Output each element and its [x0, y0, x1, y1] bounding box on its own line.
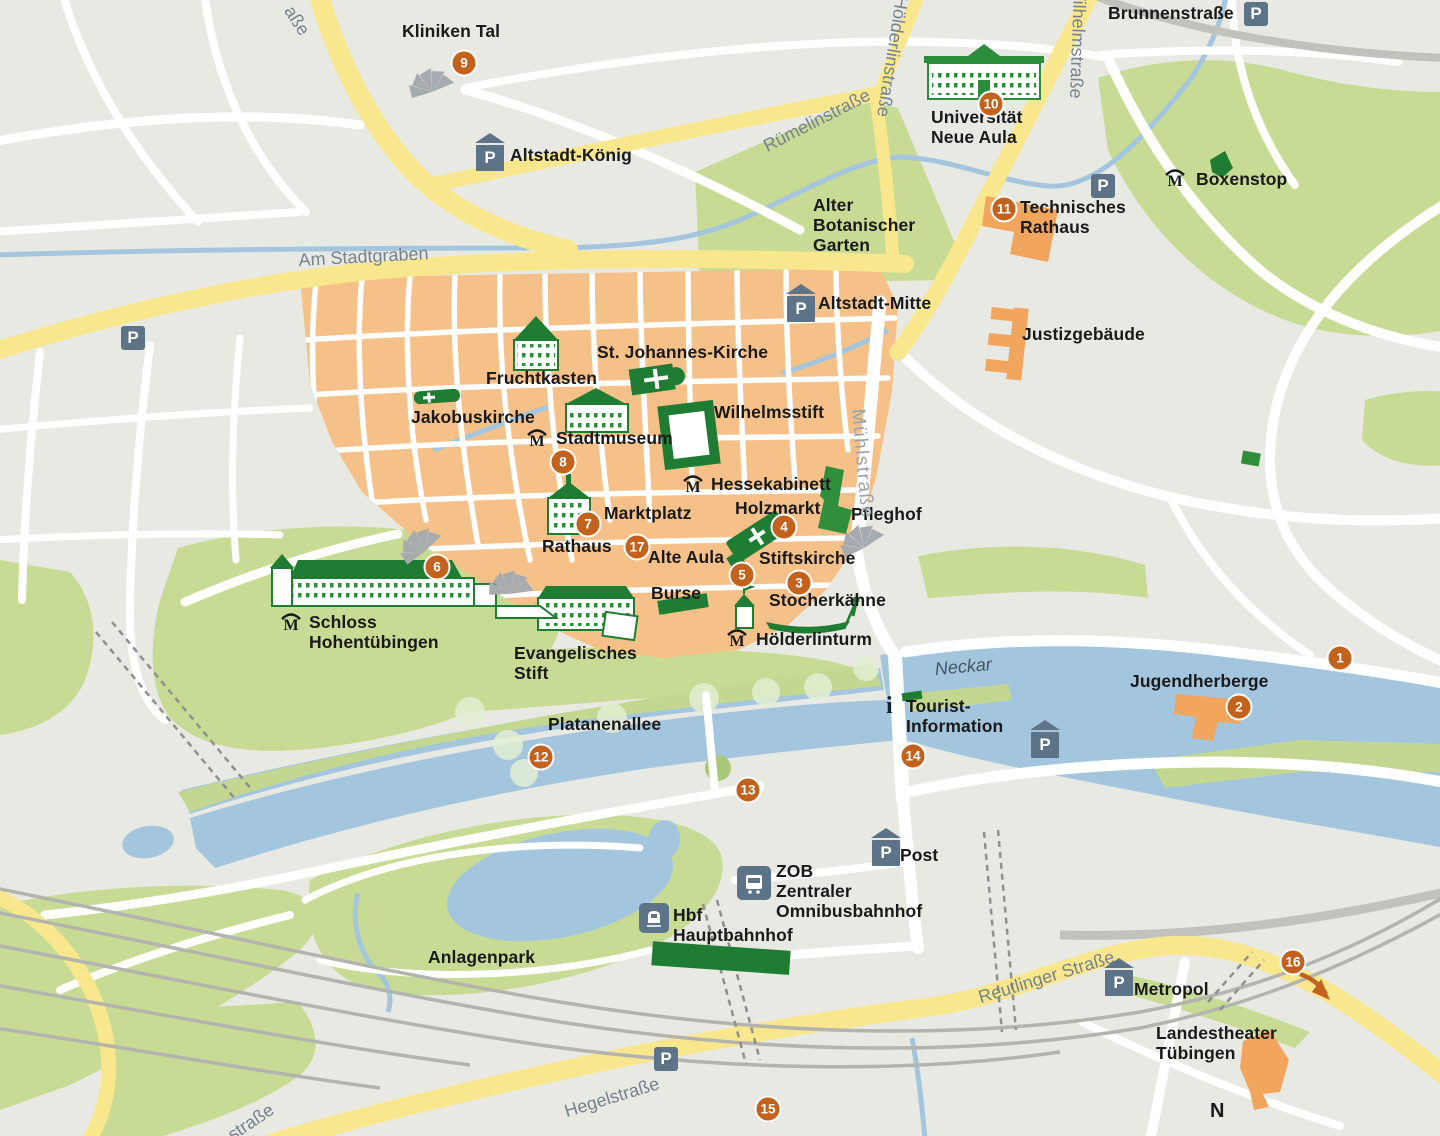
label-line: Tourist- [906, 697, 1003, 717]
label-burse: Burse [651, 584, 701, 604]
parking-garage-icon: P [786, 284, 816, 322]
label-hbf: HbfHauptbahnhof [673, 906, 793, 946]
label-tourist-information: Tourist-Information [906, 697, 1003, 737]
marker-8: 8 [550, 449, 577, 476]
label-line: Rümelinstraße [760, 85, 874, 157]
museum-icon: M [1164, 168, 1186, 189]
label-line: straße [224, 1099, 278, 1136]
label-anlagenpark: Anlagenpark [428, 948, 535, 968]
label-boxenstop: Boxenstop [1196, 170, 1287, 190]
label-line: Rathaus [542, 537, 612, 557]
parking-letter: P [121, 326, 145, 350]
train-glyph [643, 907, 665, 929]
museum-letter: M [685, 481, 700, 495]
label-ruemelinstrasse: Rümelinstraße [760, 85, 874, 157]
parking-letter: P [654, 1047, 678, 1071]
label-jugendherberge: Jugendherberge [1130, 672, 1269, 692]
parking-letter: P [1105, 970, 1133, 996]
label-line: Hauptbahnhof [673, 926, 793, 946]
parking-letter: P [1244, 2, 1268, 26]
parking-letter: P [872, 840, 900, 866]
label-line: Boxenstop [1196, 170, 1287, 190]
label-line: Rathaus [1020, 218, 1126, 238]
label-alte-aula: Alte Aula [648, 548, 724, 568]
label-line: Landestheater [1156, 1024, 1277, 1044]
marker-11: 11 [991, 196, 1018, 223]
label-line: Altstadt-Mitte [818, 294, 931, 314]
label-line: Zentraler [776, 882, 922, 902]
marker-1: 1 [1327, 645, 1354, 672]
label-line: Stocherkähne [769, 591, 886, 611]
parking-garage-icon: P [871, 828, 901, 866]
label-reutlinger-strasse: Reutlinger Straße [976, 947, 1117, 1008]
label-line: N [1210, 1100, 1225, 1123]
label-strasse-top-left: aße [279, 2, 314, 39]
marker-15: 15 [755, 1096, 782, 1123]
label-hoelderlinturm: Hölderlinturm [756, 630, 872, 650]
tuebingen-city-map: Tübingen Altstadt tourist map [0, 0, 1440, 1136]
label-line: aße [279, 2, 314, 39]
label-line: Neue Aula [931, 128, 1023, 148]
label-am-stadtgraben: Am Stadtgraben [298, 243, 429, 271]
label-line: Jugendherberge [1130, 672, 1269, 692]
parking-garage-icon: P [1030, 720, 1060, 758]
label-hessekabinett: Hessekabinett [711, 475, 831, 495]
label-line: Evangelisches [514, 644, 637, 664]
label-line: Universität [931, 108, 1023, 128]
label-strasse-bottom-left: straße [224, 1099, 278, 1136]
label-line: Omnibusbahnhof [776, 902, 922, 922]
label-line: Hölderlinstraße [872, 0, 912, 119]
museum-icon: M [280, 612, 302, 633]
marker-6: 6 [424, 554, 451, 581]
label-brunnenstrasse: Brunnenstraße [1108, 4, 1234, 24]
label-jakobuskirche: Jakobuskirche [411, 408, 535, 428]
label-line: Neckar [934, 654, 993, 680]
label-kliniken-tal: Kliniken Tal [402, 22, 500, 42]
museum-icon: M [682, 474, 704, 495]
label-hoelderlinstrasse: Hölderlinstraße [872, 0, 912, 119]
label-line: Stift [514, 664, 637, 684]
label-line: Garten [813, 236, 915, 256]
label-zob: ZOBZentralerOmnibusbahnhof [776, 862, 922, 922]
train-icon [639, 903, 669, 933]
marker-9: 9 [451, 50, 478, 77]
label-neckar-river: Neckar [934, 654, 993, 680]
label-line: Hegelstraße [562, 1073, 662, 1122]
parking-lot-icon: P [654, 1047, 678, 1071]
label-line: Alte Aula [648, 548, 724, 568]
marker-3: 3 [786, 570, 813, 597]
label-alter-botanischer-garten: AlterBotanischerGarten [813, 196, 915, 256]
label-line: Reutlinger Straße [976, 947, 1117, 1008]
label-wilhelmstrasse: Wilhelmstraße [1065, 0, 1090, 99]
label-technisches-rathaus: TechnischesRathaus [1020, 198, 1126, 238]
label-line: Fruchtkasten [486, 369, 597, 389]
label-line: Brunnenstraße [1108, 4, 1234, 24]
parking-letter: P [1091, 174, 1115, 198]
parking-roof [1104, 958, 1134, 968]
label-stocherkaehne: Stocherkähne [769, 591, 886, 611]
label-stiftskirche: Stiftskirche [759, 549, 856, 569]
label-marktplatz: Marktplatz [604, 504, 692, 524]
label-st-johannes-kirche: St. Johannes-Kirche [597, 343, 768, 363]
label-line: Anlagenpark [428, 948, 535, 968]
marker-12: 12 [528, 744, 555, 771]
label-line: Botanischer [813, 216, 915, 236]
museum-letter: M [1167, 175, 1182, 189]
label-fruchtkasten: Fruchtkasten [486, 369, 597, 389]
marker-16: 16 [1280, 949, 1307, 976]
label-line: Justizgebäude [1022, 325, 1145, 345]
parking-letter: P [1031, 732, 1059, 758]
label-line: Marktplatz [604, 504, 692, 524]
parking-letter: P [476, 145, 504, 171]
museum-letter: M [529, 435, 544, 449]
tourist-info-icon: i [886, 694, 893, 718]
label-line: Tübingen [1156, 1044, 1277, 1064]
marker-17: 17 [624, 534, 651, 561]
museum-letter: M [283, 619, 298, 633]
label-justizgebaeude: Justizgebäude [1022, 325, 1145, 345]
label-line: Information [906, 717, 1003, 737]
label-rathaus: Rathaus [542, 537, 612, 557]
label-line: Platanenallee [548, 715, 661, 735]
marker-4: 4 [771, 514, 798, 541]
museum-icon: M [526, 428, 548, 449]
label-line: Hohentübingen [309, 633, 439, 653]
label-line: Wilhelmsstift [714, 403, 824, 423]
label-schloss-hohentuebingen: SchlossHohentübingen [309, 613, 439, 653]
parking-roof [475, 133, 505, 143]
label-line: St. Johannes-Kirche [597, 343, 768, 363]
parking-letter: P [787, 296, 815, 322]
parking-roof [1030, 720, 1060, 730]
marker-13: 13 [735, 777, 762, 804]
marker-2: 2 [1226, 694, 1253, 721]
label-line: Am Stadtgraben [298, 243, 429, 271]
label-line: Schloss [309, 613, 439, 633]
museum-letter: M [729, 635, 744, 649]
bus-icon [737, 866, 771, 900]
bus-glyph [742, 871, 766, 895]
label-line: Technisches [1020, 198, 1126, 218]
label-evangelisches-stift: EvangelischesStift [514, 644, 637, 684]
marker-7: 7 [575, 511, 602, 538]
label-altstadt-koenig: Altstadt-König [510, 146, 632, 166]
label-line: Altstadt-König [510, 146, 632, 166]
labels-overlay: Kliniken TalAltstadt-KönigBrunnenstraßeB… [0, 0, 1440, 1136]
label-platanenallee: Platanenallee [548, 715, 661, 735]
label-metropol: Metropol [1134, 980, 1209, 1000]
label-line: Stiftskirche [759, 549, 856, 569]
label-compass-n: N [1210, 1100, 1225, 1123]
label-universitaet-neue-aula: UniversitätNeue Aula [931, 108, 1023, 148]
marker-10: 10 [978, 91, 1005, 118]
label-line: Hbf [673, 906, 793, 926]
label-line: Hessekabinett [711, 475, 831, 495]
parking-roof [786, 284, 816, 294]
label-wilhelmsstift: Wilhelmsstift [714, 403, 824, 423]
label-line: Alter [813, 196, 915, 216]
label-stadtmuseum: Stadtmuseum [556, 429, 673, 449]
parking-lot-icon: P [121, 326, 145, 350]
museum-icon: M [726, 628, 748, 649]
label-hegelstrasse: Hegelstraße [562, 1073, 662, 1122]
marker-14: 14 [900, 743, 927, 770]
label-landestheater-tuebingen: LandestheaterTübingen [1156, 1024, 1277, 1064]
label-line: Kliniken Tal [402, 22, 500, 42]
marker-5: 5 [729, 562, 756, 589]
label-line: Jakobuskirche [411, 408, 535, 428]
parking-roof [871, 828, 901, 838]
label-muehlstrasse: Mühlstraße [846, 408, 878, 520]
label-line: Wilhelmstraße [1065, 0, 1090, 99]
label-line: Hölderlinturm [756, 630, 872, 650]
label-line: Mühlstraße [846, 408, 878, 520]
label-line: Stadtmuseum [556, 429, 673, 449]
parking-garage-icon: P [1104, 958, 1134, 996]
label-line: Metropol [1134, 980, 1209, 1000]
parking-lot-icon: P [1091, 174, 1115, 198]
label-line: Burse [651, 584, 701, 604]
parking-garage-icon: P [475, 133, 505, 171]
parking-lot-icon: P [1244, 2, 1268, 26]
label-altstadt-mitte: Altstadt-Mitte [818, 294, 931, 314]
